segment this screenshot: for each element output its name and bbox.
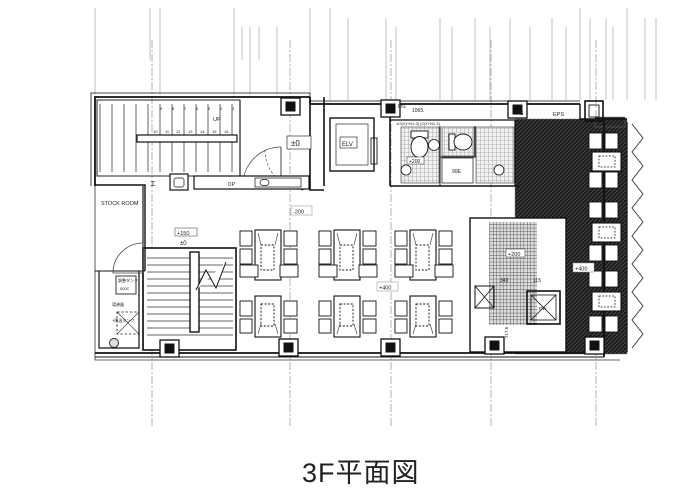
svg-text:調整タンク: 調整タンク <box>118 277 138 283</box>
svg-text:343: 343 <box>500 278 509 284</box>
svg-text:DS: DS <box>398 104 406 110</box>
svg-text:1065.: 1065. <box>412 108 425 114</box>
svg-text:10: 10 <box>153 129 158 134</box>
svg-text:+400: +400 <box>575 267 587 273</box>
svg-text:+200: +200 <box>508 252 520 258</box>
svg-text:+降温タンク: +降温タンク <box>112 317 134 323</box>
svg-text:1655.5: 1655.5 <box>516 146 521 160</box>
svg-text:EPS: EPS <box>553 112 564 118</box>
svg-text:1/2(X)+N1.3) (2(X+N1.3): 1/2(X)+N1.3) (2(X+N1.3) <box>396 121 440 126</box>
svg-text:PS: PS <box>516 111 524 117</box>
svg-text:DP: DP <box>228 182 236 188</box>
svg-text:+200: +200 <box>409 159 420 165</box>
svg-text:717.5: 717.5 <box>504 326 509 338</box>
svg-text:3F平面図: 3F平面図 <box>302 458 420 488</box>
svg-text:工: 工 <box>150 181 156 188</box>
svg-text:15: 15 <box>212 129 217 134</box>
svg-text:±0: ±0 <box>180 241 187 247</box>
svg-text:-200: -200 <box>293 210 304 216</box>
svg-text:12: 12 <box>176 129 181 134</box>
svg-text:+400: +400 <box>379 286 391 292</box>
svg-text:ELV: ELV <box>342 142 353 148</box>
svg-text:+150: +150 <box>177 231 189 237</box>
svg-text:500C: 500C <box>120 286 130 291</box>
svg-text:UP: UP <box>213 117 221 123</box>
svg-text:±0: ±0 <box>291 139 300 148</box>
svg-text:13: 13 <box>188 129 193 134</box>
svg-text:16: 16 <box>224 129 229 134</box>
svg-text:90E: 90E <box>452 169 462 175</box>
svg-text:STOCK ROOM: STOCK ROOM <box>101 201 139 207</box>
svg-text:DW: DW <box>539 306 547 311</box>
svg-text:115: 115 <box>533 278 541 284</box>
svg-text:14: 14 <box>200 129 205 134</box>
svg-text:湯沸器: 湯沸器 <box>112 301 124 307</box>
